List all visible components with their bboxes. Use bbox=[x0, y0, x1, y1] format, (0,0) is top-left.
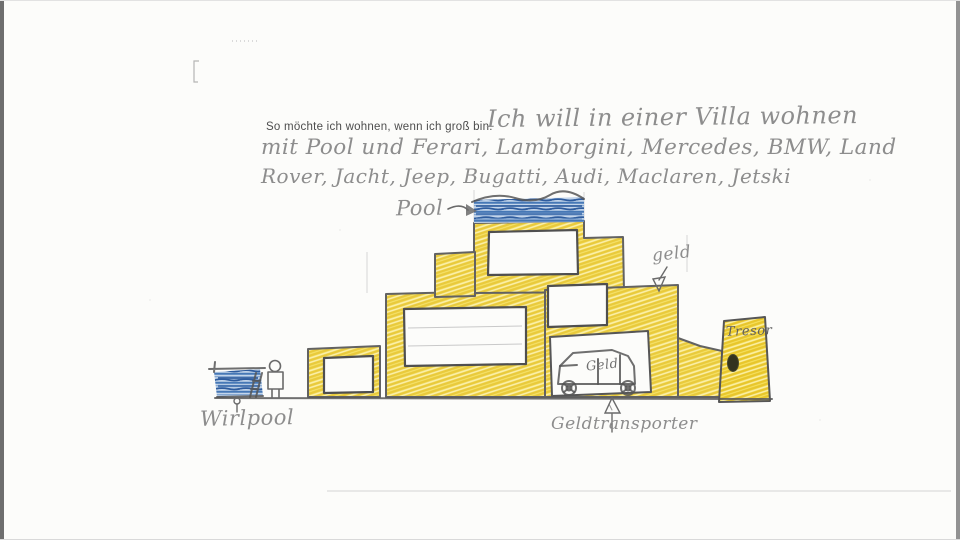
pool-drawing bbox=[472, 191, 584, 223]
villa-right-wing bbox=[678, 338, 722, 397]
scanned-childs-drawing-page: So möchte ich wohnen, wenn ich groß bin:… bbox=[0, 0, 960, 540]
ground-line bbox=[215, 398, 772, 399]
tresor-lock-knob bbox=[728, 355, 739, 372]
person-figure bbox=[268, 361, 283, 399]
handwritten-answer-line-1: Ich will in einer Villa wohnen bbox=[487, 101, 858, 133]
label-tresor: Tresor bbox=[726, 323, 773, 340]
label-geldtransporter: Geldtransporter bbox=[551, 414, 698, 434]
prompt-printed-text: So möchte ich wohnen, wenn ich groß bin: bbox=[266, 121, 493, 133]
handwritten-answer-line-3: Rover, Jacht, Jeep, Bugatti, Audi, Macla… bbox=[261, 164, 791, 188]
villa-left-step bbox=[435, 252, 475, 297]
label-wirlpool: Wirlpool bbox=[200, 405, 295, 431]
window-top bbox=[488, 230, 578, 275]
label-pool: Pool bbox=[396, 196, 444, 221]
handwritten-answer-line-2: mit Pool und Ferari, Lamborgini, Mercede… bbox=[261, 135, 897, 160]
label-geld: geld bbox=[651, 242, 692, 266]
window-big bbox=[404, 307, 526, 366]
window-right bbox=[548, 284, 607, 327]
pool-arrow bbox=[448, 204, 477, 216]
window-annex bbox=[324, 356, 373, 393]
crayon-drawing-canvas bbox=[0, 0, 960, 540]
